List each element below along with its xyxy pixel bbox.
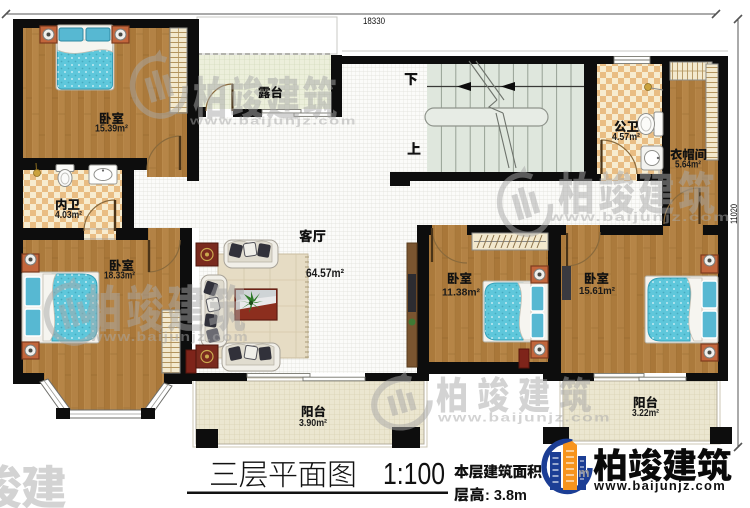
svg-text:4.57m²: 4.57m² — [612, 132, 641, 143]
svg-text:64.57m²: 64.57m² — [306, 266, 344, 280]
svg-text:15.61m²: 15.61m² — [579, 286, 616, 297]
svg-text:18330: 18330 — [363, 16, 385, 27]
svg-text:www.baijunjz.com: www.baijunjz.com — [436, 413, 611, 425]
svg-text:5.64m²: 5.64m² — [675, 160, 702, 171]
svg-text:m: m — [578, 465, 590, 480]
svg-text:3.90m²: 3.90m² — [299, 418, 328, 429]
svg-text:www.baijunjz.com: www.baijunjz.com — [188, 116, 357, 128]
svg-text:15.39m²: 15.39m² — [95, 124, 129, 135]
svg-text:4.03m²: 4.03m² — [55, 210, 83, 221]
svg-text:11020: 11020 — [729, 204, 740, 224]
svg-text:: 3.8m: : 3.8m — [485, 488, 527, 504]
svg-text:www.baijunjz.com: www.baijunjz.com — [547, 210, 731, 224]
svg-text:www.baijunjz.com: www.baijunjz.com — [89, 330, 249, 344]
svg-text:www.baijunjz.com: www.baijunjz.com — [593, 479, 726, 493]
svg-text:18.33m²: 18.33m² — [104, 271, 136, 282]
svg-text:11.38m²: 11.38m² — [442, 288, 481, 299]
svg-text:1:100: 1:100 — [383, 456, 445, 491]
svg-text:3.22m²: 3.22m² — [632, 408, 660, 419]
